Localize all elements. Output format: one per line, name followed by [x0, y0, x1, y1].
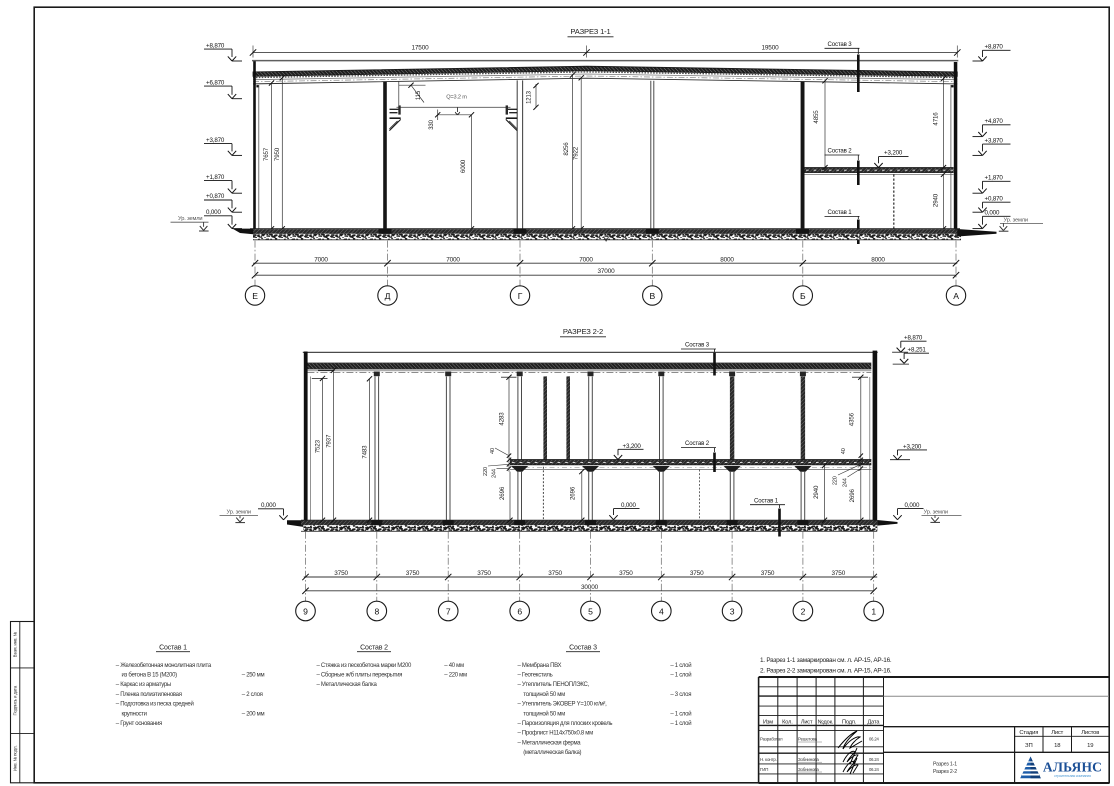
svg-text:7000: 7000 — [579, 256, 593, 263]
svg-text:7000: 7000 — [314, 256, 328, 263]
svg-text:– 220 мм: – 220 мм — [444, 673, 467, 679]
svg-text:+8,870: +8,870 — [206, 42, 225, 49]
svg-text:– Подготовка из песка средней: – Подготовка из песка средней — [116, 701, 194, 708]
svg-text:из бетона В 15 (М200): из бетона В 15 (М200) — [122, 673, 178, 679]
svg-text:7483: 7483 — [361, 445, 368, 459]
svg-text:Зобнинова: Зобнинова — [798, 767, 819, 772]
svg-text:4716: 4716 — [932, 112, 939, 126]
svg-text:– Металлическая ферма: – Металлическая ферма — [518, 740, 582, 746]
svg-text:244: 244 — [842, 478, 848, 487]
svg-text:– 40 мм: – 40 мм — [444, 663, 464, 669]
svg-text:0,000: 0,000 — [206, 209, 221, 216]
svg-text:3750: 3750 — [477, 570, 491, 577]
svg-text:Ур. земли: Ур. земли — [178, 216, 202, 222]
svg-text:толщиной 50 мм: толщиной 50 мм — [523, 691, 565, 698]
svg-text:+0,870: +0,870 — [985, 195, 1004, 202]
svg-text:строительная компания: строительная компания — [1054, 774, 1091, 778]
svg-text:+3,200: +3,200 — [903, 443, 922, 450]
svg-text:2940: 2940 — [932, 193, 939, 207]
svg-text:7937: 7937 — [325, 434, 332, 448]
svg-text:2: 2 — [801, 606, 806, 616]
svg-text:Разрез 2-2: Разрез 2-2 — [933, 769, 957, 775]
svg-text:37000: 37000 — [597, 268, 615, 275]
svg-text:1. Разрез 1-1 замаркирован см.: 1. Разрез 1-1 замаркирован см. л. АР-15,… — [760, 657, 892, 664]
svg-text:4855: 4855 — [813, 110, 820, 124]
svg-text:Ур. земли: Ур. земли — [1004, 217, 1028, 223]
svg-text:Решетова: Решетова — [798, 737, 818, 742]
svg-text:2696: 2696 — [849, 489, 856, 503]
svg-text:ГИП: ГИП — [760, 767, 768, 772]
svg-text:– 1 слой: – 1 слой — [670, 662, 691, 669]
svg-text:330: 330 — [429, 119, 435, 129]
svg-text:Взам. инв. №: Взам. инв. № — [13, 632, 18, 658]
svg-text:ЗП: ЗП — [1025, 743, 1033, 749]
svg-text:Н. контр.: Н. контр. — [760, 757, 777, 762]
svg-text:Стадия: Стадия — [1019, 730, 1038, 736]
svg-text:3750: 3750 — [548, 570, 562, 577]
svg-text:Состав 1: Состав 1 — [827, 209, 852, 216]
svg-text:6000: 6000 — [460, 159, 467, 173]
svg-text:– Грунт основания: – Грунт основания — [116, 721, 162, 727]
svg-text:3750: 3750 — [334, 570, 348, 577]
svg-text:Б: Б — [800, 291, 806, 301]
svg-text:40: 40 — [841, 448, 847, 454]
svg-text:– Утеплитель ЭКОВЕР Y=100 кг/м: – Утеплитель ЭКОВЕР Y=100 кг/м², — [518, 702, 608, 708]
svg-text:2. Разрез 2-2 замаркирован см.: 2. Разрез 2-2 замаркирован см. л. АР-15,… — [760, 668, 892, 675]
svg-text:0,000: 0,000 — [261, 502, 276, 509]
svg-text:+4,870: +4,870 — [985, 118, 1004, 125]
svg-text:+6,870: +6,870 — [206, 79, 225, 86]
svg-text:Разработал: Разработал — [760, 737, 783, 742]
svg-text:244: 244 — [491, 469, 497, 478]
svg-text:19500: 19500 — [761, 45, 779, 52]
svg-text:Кол.: Кол. — [782, 719, 793, 725]
svg-text:+1,870: +1,870 — [206, 174, 225, 181]
svg-text:+3,870: +3,870 — [985, 137, 1004, 144]
svg-text:3: 3 — [730, 606, 735, 616]
svg-text:Состав 2: Состав 2 — [827, 148, 852, 155]
svg-text:Д: Д — [385, 291, 391, 301]
svg-text:30000: 30000 — [581, 584, 599, 591]
svg-text:Ур. земли: Ур. земли — [924, 509, 948, 515]
svg-text:06.24: 06.24 — [869, 757, 880, 762]
svg-text:7922: 7922 — [573, 146, 580, 160]
svg-text:7657: 7657 — [263, 147, 270, 161]
svg-text:8000: 8000 — [720, 256, 734, 263]
svg-text:– Мембрана ПВХ: – Мембрана ПВХ — [518, 663, 562, 669]
svg-text:9: 9 — [303, 606, 308, 616]
svg-text:115: 115 — [416, 90, 422, 100]
svg-text:0,000: 0,000 — [621, 502, 636, 509]
svg-text:Ур. земли: Ур. земли — [227, 510, 251, 516]
svg-text:+3,200: +3,200 — [623, 443, 642, 450]
svg-text:Г: Г — [518, 291, 523, 301]
svg-text:Лист: Лист — [801, 719, 813, 725]
svg-text:+3,870: +3,870 — [206, 137, 225, 144]
svg-text:+8,870: +8,870 — [985, 44, 1004, 51]
svg-text:Q=3.2 m: Q=3.2 m — [446, 95, 467, 101]
svg-text:Инв. № подл.: Инв. № подл. — [13, 746, 18, 772]
svg-text:3750: 3750 — [406, 570, 420, 577]
svg-text:19: 19 — [1087, 743, 1093, 749]
svg-text:Состав 1: Состав 1 — [754, 497, 779, 504]
svg-text:толщиной 50 мм: толщиной 50 мм — [523, 710, 565, 717]
svg-text:7523: 7523 — [314, 439, 321, 453]
svg-text:+1,870: +1,870 — [985, 175, 1004, 182]
svg-text:РАЗРЕЗ 1-1: РАЗРЕЗ 1-1 — [570, 27, 610, 36]
svg-text:2696: 2696 — [499, 486, 506, 500]
svg-text:– 250 мм: – 250 мм — [242, 673, 265, 679]
svg-text:06.24: 06.24 — [869, 767, 880, 772]
svg-text:18: 18 — [1054, 743, 1061, 749]
svg-text:Подпись и дата: Подпись и дата — [13, 685, 18, 715]
svg-text:+0,870: +0,870 — [206, 193, 225, 200]
svg-text:– 3 слоя: – 3 слоя — [670, 692, 691, 698]
svg-text:Состав 2: Состав 2 — [360, 645, 388, 652]
svg-text:– 1 слой: – 1 слой — [670, 720, 691, 727]
svg-text:+8,251: +8,251 — [908, 347, 927, 354]
svg-text:Изм: Изм — [763, 719, 773, 725]
svg-text:Е: Е — [252, 291, 258, 301]
svg-text:4: 4 — [659, 606, 664, 616]
svg-text:Листов: Листов — [1081, 730, 1099, 736]
svg-text:0,000: 0,000 — [985, 210, 1000, 217]
svg-text:Состав 3: Состав 3 — [685, 342, 710, 349]
svg-text:220: 220 — [833, 476, 839, 485]
svg-text:– 1 слой: – 1 слой — [670, 710, 691, 717]
svg-text:РАЗРЕЗ 2-2: РАЗРЕЗ 2-2 — [563, 327, 603, 336]
svg-text:3750: 3750 — [619, 570, 633, 577]
svg-text:1213: 1213 — [526, 90, 532, 104]
svg-text:40: 40 — [490, 448, 496, 454]
svg-text:3750: 3750 — [831, 570, 845, 577]
svg-text:– Профлист Н114х750х0.8 мм: – Профлист Н114х750х0.8 мм — [518, 731, 594, 737]
svg-text:– Сборные ж/б плиты перекрытия: – Сборные ж/б плиты перекрытия — [317, 673, 403, 679]
svg-text:220: 220 — [483, 467, 489, 476]
svg-text:+8,870: +8,870 — [904, 334, 923, 341]
svg-text:– Металлическая балка: – Металлическая балка — [317, 682, 378, 688]
svg-text:3750: 3750 — [690, 570, 704, 577]
svg-text:5: 5 — [588, 606, 593, 616]
svg-text:8256: 8256 — [563, 142, 570, 156]
svg-text:крупности: крупности — [122, 711, 147, 717]
svg-text:2696: 2696 — [569, 486, 576, 500]
svg-text:8: 8 — [374, 606, 379, 616]
svg-text:Разрез 1-1: Разрез 1-1 — [933, 762, 957, 768]
svg-text:Состав 3: Состав 3 — [569, 645, 597, 652]
svg-text:– 1 слой: – 1 слой — [670, 672, 691, 679]
svg-text:17500: 17500 — [411, 45, 429, 52]
svg-text:– Железобетонная монолитная п: – Железобетонная монолитная плита — [116, 663, 212, 669]
svg-text:АЛЬЯНС: АЛЬЯНС — [1043, 760, 1102, 775]
svg-text:4283: 4283 — [499, 412, 506, 426]
svg-text:4356: 4356 — [849, 412, 856, 426]
svg-text:06.24: 06.24 — [869, 737, 880, 742]
svg-text:– Каркас из арматуры: – Каркас из арматуры — [116, 682, 171, 688]
svg-text:№док.: №док. — [818, 719, 834, 725]
svg-text:– Стяжка из пескобетона марки: – Стяжка из пескобетона марки М200 — [317, 663, 413, 669]
svg-text:1: 1 — [871, 606, 876, 616]
svg-text:Лист: Лист — [1051, 730, 1063, 736]
svg-text:– Утеплитель ПЕНОПЛЭКС,: – Утеплитель ПЕНОПЛЭКС, — [518, 682, 590, 688]
svg-text:7950: 7950 — [274, 147, 281, 161]
svg-text:Дата: Дата — [868, 719, 881, 725]
svg-text:– 2 слоя: – 2 слоя — [242, 692, 263, 698]
svg-text:+3,200: +3,200 — [884, 150, 903, 157]
svg-text:Состав 1: Состав 1 — [159, 645, 187, 652]
svg-text:– Пароизоляция для плоских кро: – Пароизоляция для плоских кровель — [518, 721, 613, 727]
svg-text:3750: 3750 — [761, 570, 775, 577]
svg-text:Состав 3: Состав 3 — [827, 41, 852, 48]
svg-text:8000: 8000 — [871, 256, 885, 263]
svg-text:А: А — [953, 291, 959, 301]
svg-text:2940: 2940 — [813, 485, 820, 499]
svg-text:Зобнинова: Зобнинова — [798, 757, 819, 762]
svg-text:Подп.: Подп. — [842, 719, 857, 725]
svg-text:– 200 мм: – 200 мм — [242, 711, 265, 717]
svg-text:Состав 2: Состав 2 — [685, 440, 710, 447]
svg-text:– Геотекстиль: – Геотекстиль — [518, 673, 553, 679]
svg-text:7000: 7000 — [446, 256, 460, 263]
svg-text:6: 6 — [517, 606, 522, 616]
svg-text:0,000: 0,000 — [905, 502, 920, 509]
svg-text:7: 7 — [446, 606, 451, 616]
svg-text:(металлическая балка): (металлическая балка) — [523, 750, 581, 756]
svg-text:В: В — [650, 291, 656, 301]
svg-text:– Пленка полиэтиленовая: – Пленка полиэтиленовая — [116, 692, 182, 698]
